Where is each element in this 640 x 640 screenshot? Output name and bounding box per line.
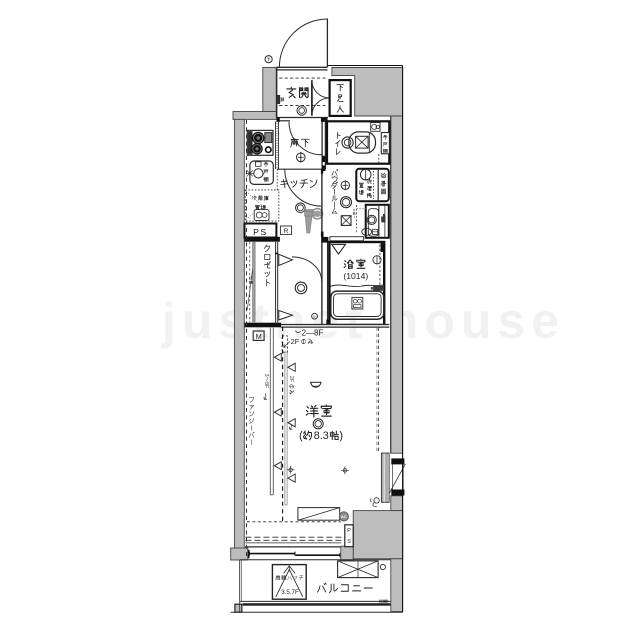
svg-text:): ) — [339, 430, 343, 442]
svg-text:PS: PS — [253, 227, 267, 237]
svg-text:(1014): (1014) — [343, 271, 368, 281]
svg-text:AC: AC — [341, 514, 347, 519]
svg-text:2F: 2F — [291, 337, 300, 346]
svg-text:R: R — [284, 228, 289, 235]
svg-text:2F: 2F — [288, 376, 294, 383]
svg-text:8.3: 8.3 — [314, 430, 329, 442]
svg-text:·: · — [348, 533, 350, 539]
svg-text:2—8F: 2—8F — [302, 329, 324, 338]
svg-text:3.5.7F: 3.5.7F — [281, 589, 299, 596]
svg-text:(: ( — [299, 430, 303, 442]
svg-text:S: S — [347, 539, 351, 545]
svg-text:3〜8F: 3〜8F — [263, 374, 269, 389]
svg-text:M: M — [256, 332, 262, 341]
